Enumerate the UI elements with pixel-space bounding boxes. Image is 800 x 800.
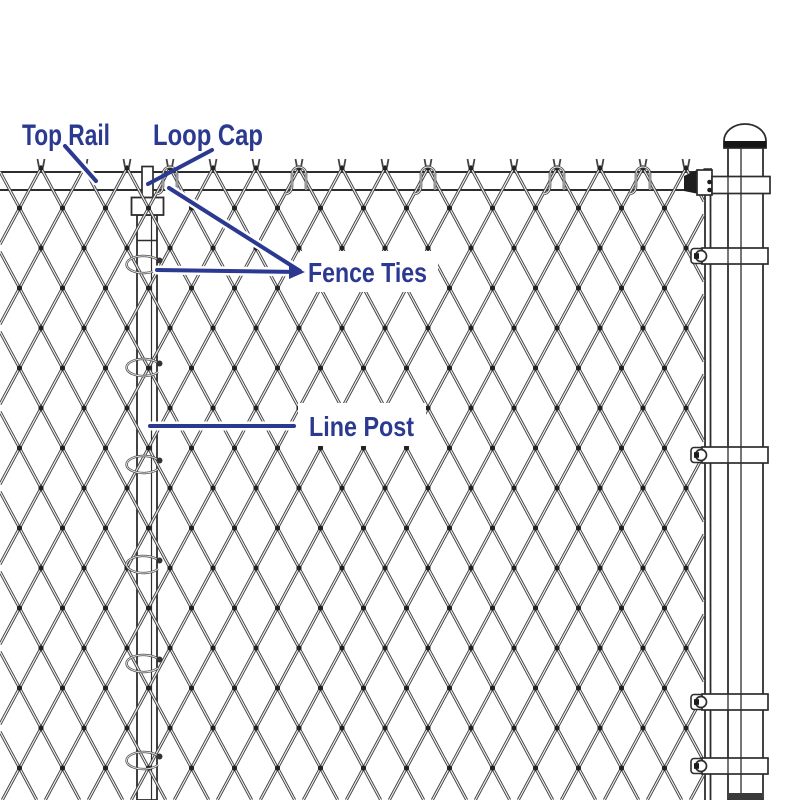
line-post-label: Line Post [309, 411, 414, 442]
tension-band [691, 447, 768, 463]
tension-band [691, 248, 768, 264]
fence-diagram-canvas: Top Rail Loop Cap Fence Ties Line Post [0, 0, 800, 800]
loop-cap-label: Loop Cap [153, 119, 263, 152]
top-rail-label: Top Rail [22, 119, 110, 152]
fence-ties-label: Fence Ties [308, 257, 427, 288]
tension-band [691, 758, 768, 774]
chainlink-fence-diagram: Top Rail Loop Cap Fence Ties Line Post [0, 0, 800, 800]
tension-band [691, 694, 768, 710]
post-cap-band [724, 141, 767, 148]
fence-ties-pointer-lower [157, 270, 300, 272]
post-bottom [729, 793, 762, 800]
